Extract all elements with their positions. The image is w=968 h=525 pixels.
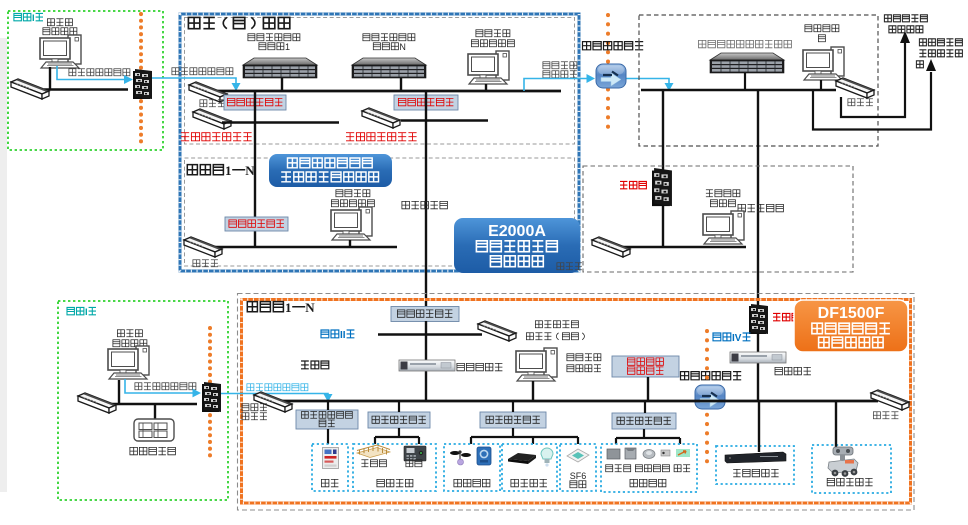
svg-text:E2000A: E2000A [488,223,546,240]
svg-text:I: I [32,13,35,24]
svg-text:I: I [85,307,88,318]
svg-text:N: N [245,163,255,178]
svg-text:N: N [399,42,406,52]
svg-text:N: N [305,300,315,315]
svg-text:1: 1 [225,163,232,178]
svg-text:1: 1 [285,42,290,52]
svg-text:IV: IV [732,333,742,344]
svg-text:SF6: SF6 [570,471,587,481]
svg-text:DF1500F: DF1500F [818,305,885,322]
svg-text:1: 1 [285,300,292,315]
svg-text:II: II [340,330,346,341]
